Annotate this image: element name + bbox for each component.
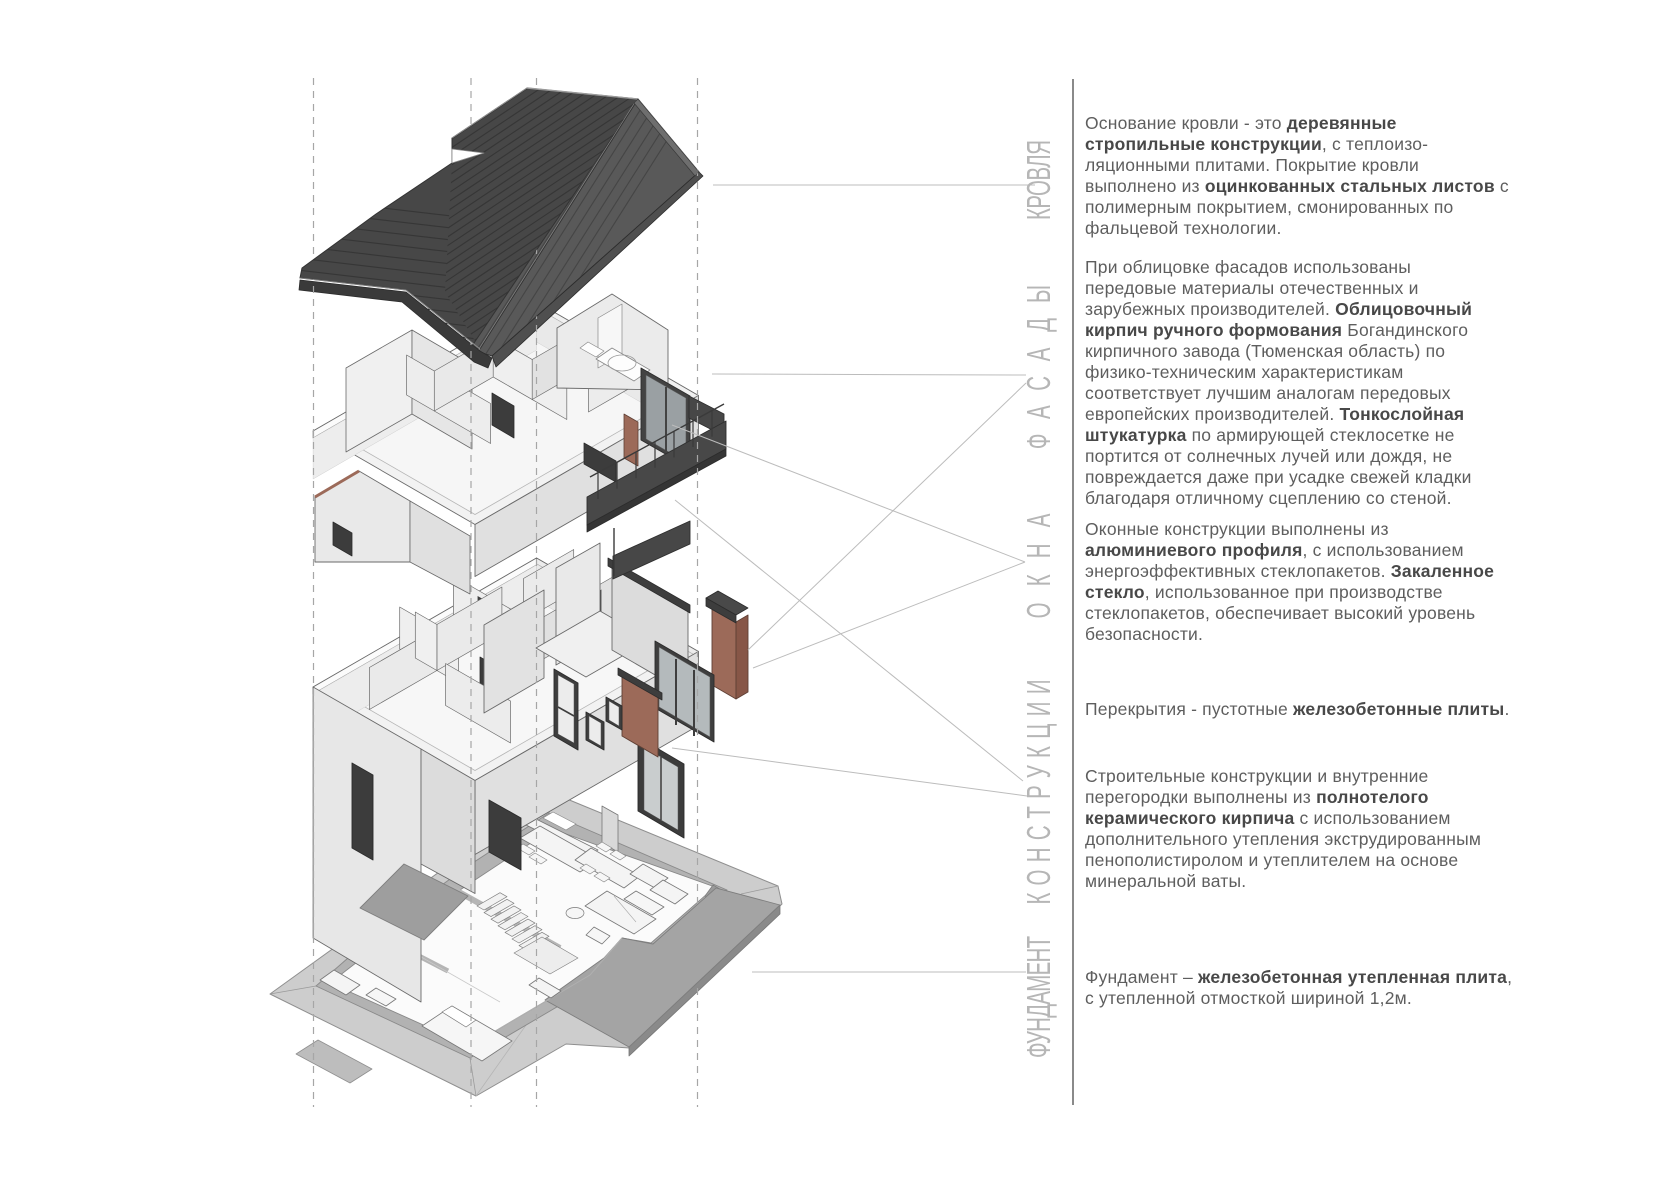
svg-text:ФУНДАМЕНТ: ФУНДАМЕНТ: [1020, 936, 1057, 1058]
svg-text:ОКНА: ОКНА: [1020, 513, 1057, 618]
svg-text:ФАСАДЫ: ФАСАДЫ: [1020, 285, 1057, 449]
svg-text:КОНСТРУКЦИИ: КОНСТРУКЦИИ: [1020, 679, 1057, 904]
svg-text:КРОВЛЯ: КРОВЛЯ: [1020, 140, 1057, 220]
